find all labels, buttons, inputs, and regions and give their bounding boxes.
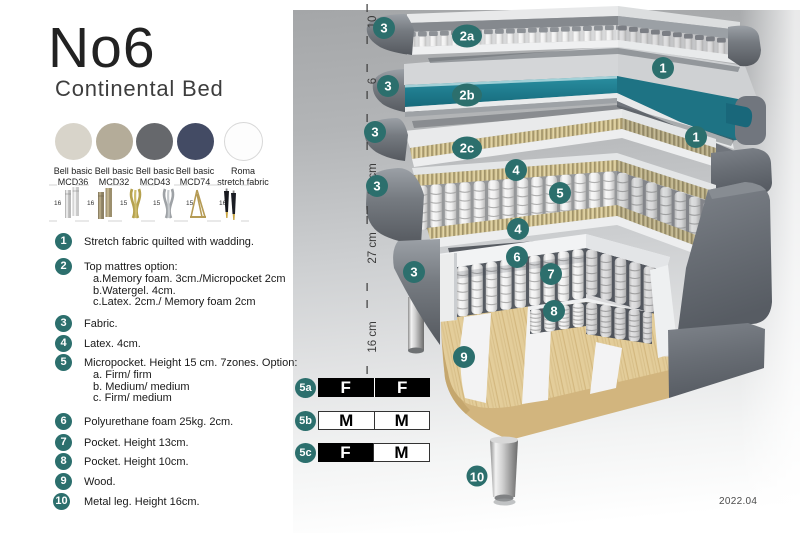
svg-text:3: 3 <box>410 265 417 280</box>
svg-text:3: 3 <box>384 79 391 94</box>
svg-text:1: 1 <box>659 61 666 76</box>
svg-text:8: 8 <box>550 304 557 319</box>
svg-text:2a: 2a <box>460 29 475 44</box>
svg-text:3: 3 <box>380 21 387 36</box>
svg-text:6: 6 <box>513 250 520 265</box>
svg-text:4: 4 <box>514 222 522 237</box>
svg-text:7: 7 <box>547 267 554 282</box>
svg-text:6: 6 <box>367 78 379 84</box>
svg-text:10: 10 <box>470 470 484 485</box>
svg-text:5: 5 <box>556 186 563 201</box>
svg-text:3: 3 <box>371 125 378 140</box>
svg-text:2b: 2b <box>459 88 474 103</box>
svg-text:1: 1 <box>692 130 699 145</box>
svg-text:9: 9 <box>460 350 467 365</box>
svg-text:2c: 2c <box>460 141 474 156</box>
svg-text:4: 4 <box>512 163 520 178</box>
svg-text:27 cm: 27 cm <box>367 232 379 263</box>
svg-text:16 cm: 16 cm <box>367 321 379 352</box>
svg-text:3: 3 <box>373 179 380 194</box>
